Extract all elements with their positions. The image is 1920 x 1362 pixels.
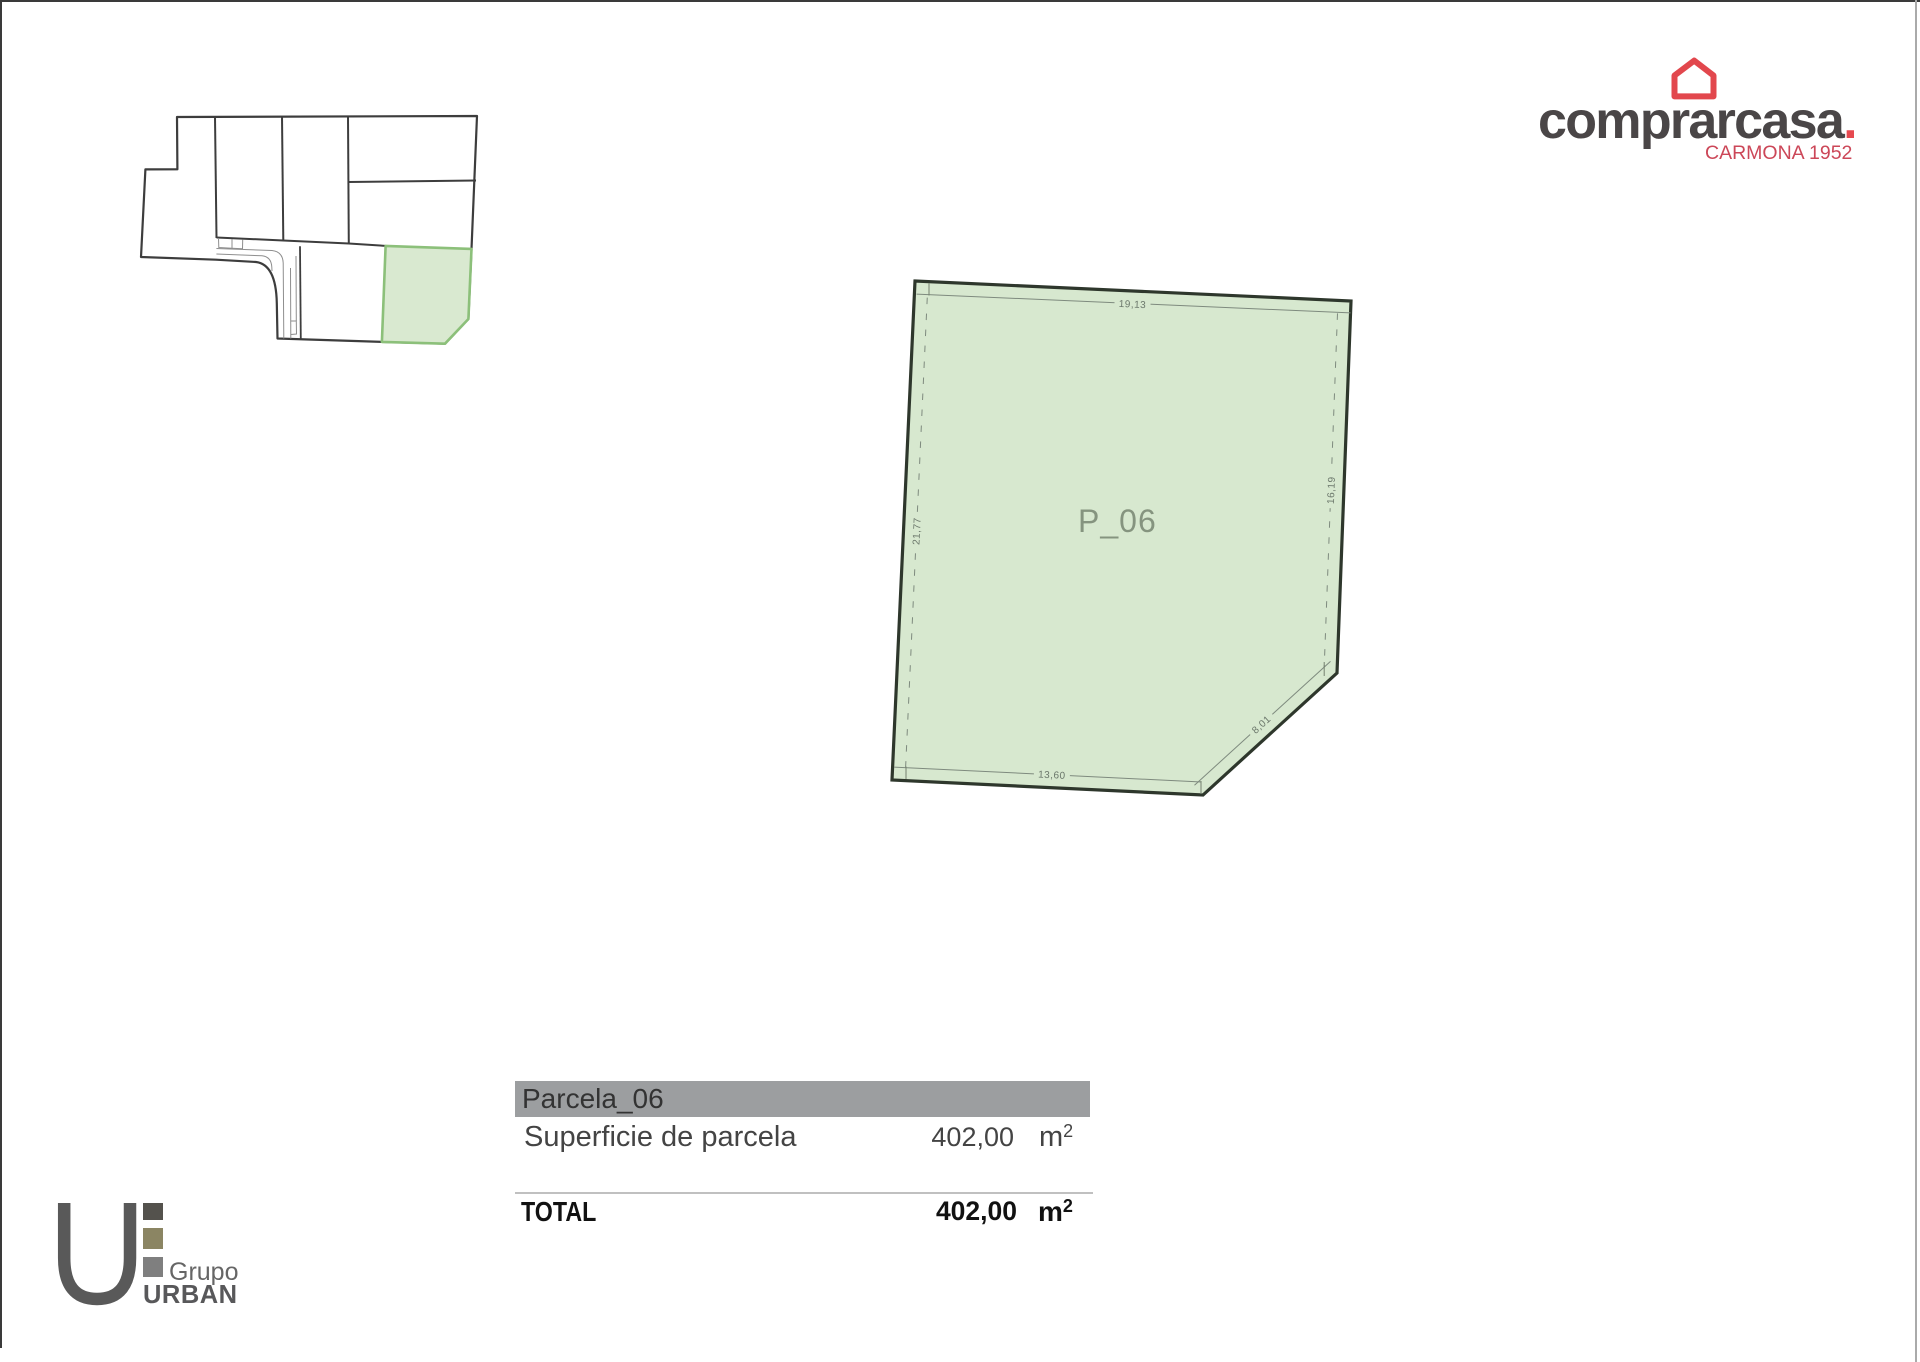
svg-text:URBAN: URBAN [143,1281,238,1309]
svg-text:P_06: P_06 [1078,503,1157,539]
svg-text:16,19: 16,19 [1326,476,1338,504]
svg-text:13,60: 13,60 [1038,770,1066,782]
svg-text:19,13: 19,13 [1118,299,1146,311]
svg-text:21,77: 21,77 [911,517,923,545]
